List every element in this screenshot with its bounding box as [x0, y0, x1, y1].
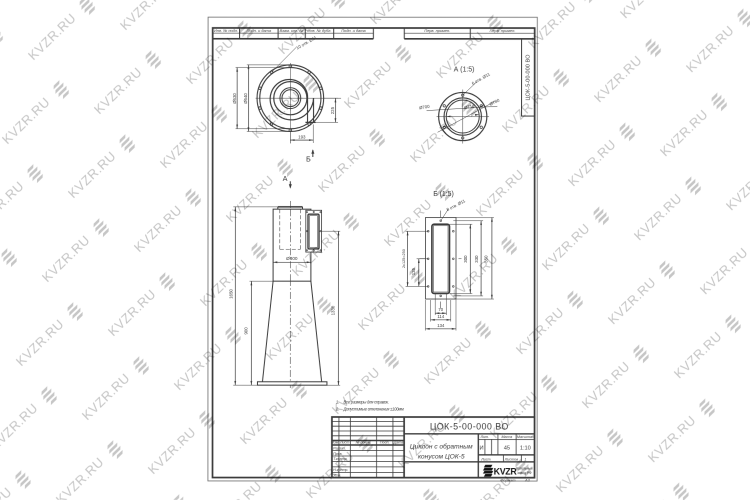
- svg-text:конусом ЦОК-5: конусом ЦОК-5: [418, 453, 465, 460]
- svg-text:1650: 1650: [229, 289, 234, 299]
- svg-text:300: 300: [463, 255, 468, 263]
- svg-text:Лист: Лист: [480, 457, 491, 461]
- svg-text:И: И: [480, 446, 484, 452]
- svg-text:Допустимые отклонения ±100мм: Допустимые отклонения ±100мм: [342, 406, 403, 411]
- svg-text:900: 900: [243, 327, 248, 335]
- svg-text:Дата: Дата: [393, 441, 403, 445]
- svg-text:193: 193: [298, 134, 306, 139]
- svg-text:45: 45: [504, 446, 510, 452]
- svg-text:70: 70: [438, 307, 443, 312]
- svg-text:114: 114: [437, 314, 444, 319]
- svg-text:Изм.: Изм.: [332, 441, 340, 445]
- svg-text:Подп.: Подп.: [380, 441, 390, 445]
- svg-text:Перв. примен.: Перв. примен.: [424, 28, 450, 33]
- svg-text:Масштаб: Масштаб: [517, 435, 535, 439]
- svg-text:Лит.: Лит.: [479, 435, 489, 439]
- svg-text:Масса: Масса: [501, 435, 512, 439]
- svg-text:1: 1: [524, 457, 526, 461]
- svg-text:225: 225: [330, 106, 335, 114]
- svg-text:Лист: Лист: [339, 441, 349, 445]
- svg-text:Инв. № подл.: Инв. № подл.: [214, 28, 238, 33]
- svg-text:2х125=250: 2х125=250: [402, 249, 406, 268]
- svg-text:Листов: Листов: [504, 457, 519, 461]
- svg-text:Ø540: Ø540: [243, 93, 248, 104]
- svg-text:134: 134: [437, 323, 445, 328]
- svg-text:1:10: 1:10: [520, 446, 531, 452]
- svg-text:Подп. и дата: Подп. и дата: [341, 28, 366, 33]
- svg-text:Ø530: Ø530: [232, 93, 237, 104]
- svg-text:А: А: [283, 174, 288, 183]
- svg-text:Б: Б: [306, 154, 311, 163]
- svg-text:А3: А3: [524, 479, 531, 483]
